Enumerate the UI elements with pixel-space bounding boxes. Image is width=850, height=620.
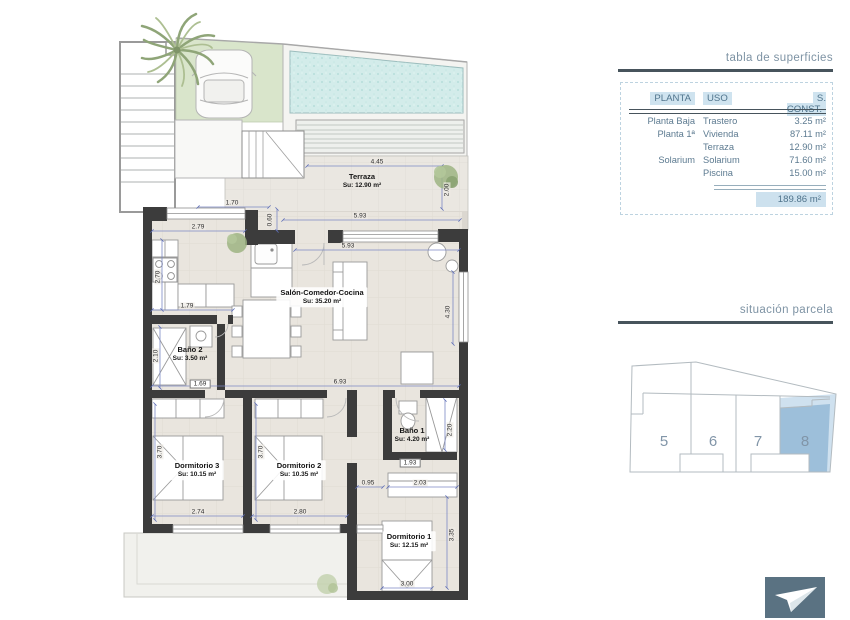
room-label-dorm3: Dormitorio 3 Su: 10.15 m² xyxy=(171,460,224,480)
dim-2-03: 2.03 xyxy=(413,480,428,487)
title-rule xyxy=(618,321,833,324)
floor-plan-page: Terraza Su: 12.90 m² Salón-Comedor-Cocin… xyxy=(0,0,850,620)
dim-4-30: 4.30 xyxy=(445,305,452,320)
parcela-title: situación parcela xyxy=(618,304,833,316)
dim-1-79: 1.79 xyxy=(180,303,195,310)
exterior-staircase xyxy=(120,42,175,212)
patio-door xyxy=(357,525,383,533)
col-uso: USO xyxy=(703,92,732,105)
total-surface: 189.86 m² xyxy=(756,192,826,207)
title-rule xyxy=(618,69,833,72)
company-logo xyxy=(765,577,825,618)
room-label-salon: Salón-Comedor-Cocina Su: 35.20 m² xyxy=(276,287,367,307)
dim-2-10: 2.10 xyxy=(153,349,160,364)
surfaces-table: PLANTA USO S. CONST. Planta Baja Traster… xyxy=(620,82,833,215)
plot-number-7: 7 xyxy=(754,433,762,450)
patio xyxy=(124,533,348,597)
room-label-dorm1: Dormitorio 1 Su: 12.15 m² xyxy=(383,531,436,551)
armchair xyxy=(401,352,433,384)
dim-2-20: 2.20 xyxy=(447,423,454,438)
total-rule xyxy=(714,185,826,190)
table-row: Planta Baja Trastero 3.25 m² xyxy=(629,116,826,126)
surfaces-table-title: tabla de superficies xyxy=(618,52,833,64)
plot-number-8: 8 xyxy=(801,433,809,450)
dim-3-70-d2: 3.70 xyxy=(258,445,265,460)
pool-area xyxy=(283,44,467,156)
dim-2-79: 2.79 xyxy=(191,224,206,231)
dim-5-93-terraza: 5.93 xyxy=(353,213,368,220)
table-row: Planta 1ª Vivienda 87.11 m² xyxy=(629,129,826,139)
room-label-bano1: Baño 1 Su: 4.20 m² xyxy=(391,425,434,445)
plant xyxy=(227,233,247,253)
dim-0-95: 0.95 xyxy=(361,480,376,487)
dim-2-74: 2.74 xyxy=(191,509,206,516)
room-label-bano2: Baño 2 Su: 3.50 m² xyxy=(169,344,212,364)
sink-icon xyxy=(255,244,277,264)
paper-plane-icon xyxy=(765,577,825,618)
table-row: Piscina 15.00 m² xyxy=(629,168,826,178)
car xyxy=(192,50,256,118)
pool-deck-steps xyxy=(296,120,464,153)
side-table xyxy=(428,243,446,261)
sliding-glass-door xyxy=(343,231,438,242)
dim-3-00: 3.00 xyxy=(400,581,415,588)
dim-2-80: 2.80 xyxy=(293,509,308,516)
dim-1-70: 1.70 xyxy=(225,200,240,207)
dim-2-70: 2.70 xyxy=(155,270,162,285)
dim-5-93-salon: 5.93 xyxy=(341,243,356,250)
dim-2-00: 2.00 xyxy=(444,183,451,198)
dim-6-93: 6.93 xyxy=(333,379,348,386)
col-planta: PLANTA xyxy=(650,92,695,105)
plot-number-6: 6 xyxy=(709,433,717,450)
room-label-terraza: Terraza Su: 12.90 m² xyxy=(339,171,385,191)
table-row: Solarium Solarium 71.60 m² xyxy=(629,155,826,165)
dining-table xyxy=(232,300,301,358)
dim-3-70-d3: 3.70 xyxy=(157,445,164,460)
header-rule xyxy=(629,109,826,114)
dim-1-69: 1.69 xyxy=(190,380,211,389)
dim-4-45: 4.45 xyxy=(370,159,385,166)
plot-number-5: 5 xyxy=(660,433,668,450)
dim-1-93: 1.93 xyxy=(400,459,421,468)
side-table xyxy=(446,260,458,272)
dim-3-35: 3.35 xyxy=(449,528,456,543)
room-label-dorm2: Dormitorio 2 Su: 10.35 m² xyxy=(273,460,326,480)
dim-0-60: 0.60 xyxy=(267,213,274,228)
table-row: Terraza 12.90 m² xyxy=(629,142,826,152)
parcela-map: 5 6 7 8 xyxy=(616,354,846,494)
